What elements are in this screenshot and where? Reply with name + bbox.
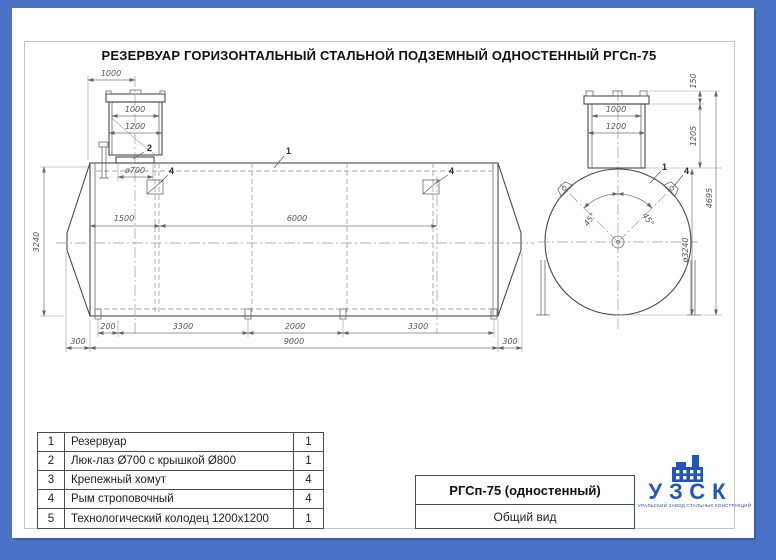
dim-span2: 6000: [287, 214, 307, 223]
end-dimensions-right: 150 1205 ø3240 4695: [620, 73, 722, 315]
model-designation: РГСп-75 (одностенный): [416, 476, 634, 505]
part-name: Резервуар: [65, 433, 294, 452]
dim-neck-outer: 1200: [606, 122, 626, 131]
callout-clamp-right: 4: [449, 166, 454, 176]
dim-neck-inner: 1000: [606, 105, 626, 114]
dim-angle-right: 45°: [640, 211, 656, 228]
logo-caption: УРАЛЬСКИЙ ЗАВОД СТАЛЬНЫХ КОНСТРУКЦИЙ: [638, 503, 738, 508]
part-name: Технологический колодец 1200х1200: [65, 509, 294, 528]
tank-left-cone: [67, 163, 90, 316]
technical-drawing: 2 1 4 4 1000 1000 1200 ø700 1500: [0, 0, 776, 432]
part-name: Крепежный хомут: [65, 471, 294, 490]
dim-angle-left: 45°: [582, 211, 598, 228]
callout-end-body: 1: [662, 162, 667, 172]
callout-clamp-left: 4: [169, 166, 174, 176]
dim-b1-1: 3300: [173, 322, 193, 331]
dim-b1-0: 200: [100, 322, 115, 331]
company-logo: УЗСК УРАЛЬСКИЙ ЗАВОД СТАЛЬНЫХ КОНСТРУКЦИ…: [638, 454, 738, 508]
dim-well-inner: 1000: [125, 105, 145, 114]
clamp-right: [423, 180, 439, 194]
part-qty: 4: [294, 490, 323, 509]
end-view: 45° 45° 1000 1200 150 1205 ø3240 4695: [536, 73, 722, 332]
part-num: 5: [38, 509, 65, 528]
part-name: Рым строповочный: [65, 490, 294, 509]
dim-b1-3: 3300: [408, 322, 428, 331]
vent-pipe: [99, 142, 109, 178]
part-qty: 4: [294, 471, 323, 490]
screenshot-root: { "page": { "title": "РЕЗЕРВУАР ГОРИЗОНТ…: [0, 0, 776, 560]
part-num: 3: [38, 471, 65, 490]
part-qty: 1: [294, 509, 323, 528]
part-qty: 1: [294, 452, 323, 471]
tank-right-cone: [498, 163, 521, 316]
parts-table: 1 Резервуар 1 2 Люк-лаз Ø700 с крышкой Ø…: [37, 432, 324, 529]
dim-span1: 1500: [114, 214, 134, 223]
part-name: Люк-лаз Ø700 с крышкой Ø800: [65, 452, 294, 471]
callout-end-lug: 4: [684, 166, 689, 176]
part-num: 1: [38, 433, 65, 452]
dim-b2-0: 300: [70, 337, 85, 346]
dim-cover: 150: [689, 73, 698, 88]
title-block: РГСп-75 (одностенный) Общий вид: [415, 475, 635, 529]
dim-manhole: ø700: [124, 166, 145, 175]
callout-body: 1: [286, 146, 291, 156]
dim-b2-2: 300: [502, 337, 517, 346]
view-name: Общий вид: [416, 505, 634, 528]
dim-total-height: 4695: [705, 188, 714, 208]
dim-well-outer: 1200: [125, 122, 145, 131]
side-view: 2 1 4 4 1000 1000 1200 ø700 1500: [32, 69, 534, 352]
dim-height: 3240: [32, 232, 41, 252]
side-dimensions: 1000 1000 1200 ø700 1500 6000 3240: [32, 69, 522, 352]
dim-diameter: ø3240: [681, 237, 690, 263]
part-num: 4: [38, 490, 65, 509]
dim-offset: 1000: [101, 69, 121, 78]
dim-neck-height: 1205: [689, 126, 698, 146]
part-num: 2: [38, 452, 65, 471]
callout-manhole: 2: [147, 143, 152, 153]
logo-text: УЗСК: [643, 483, 738, 501]
dim-b1-2: 2000: [285, 322, 305, 331]
part-qty: 1: [294, 433, 323, 452]
dim-b2-1: 9000: [284, 337, 304, 346]
